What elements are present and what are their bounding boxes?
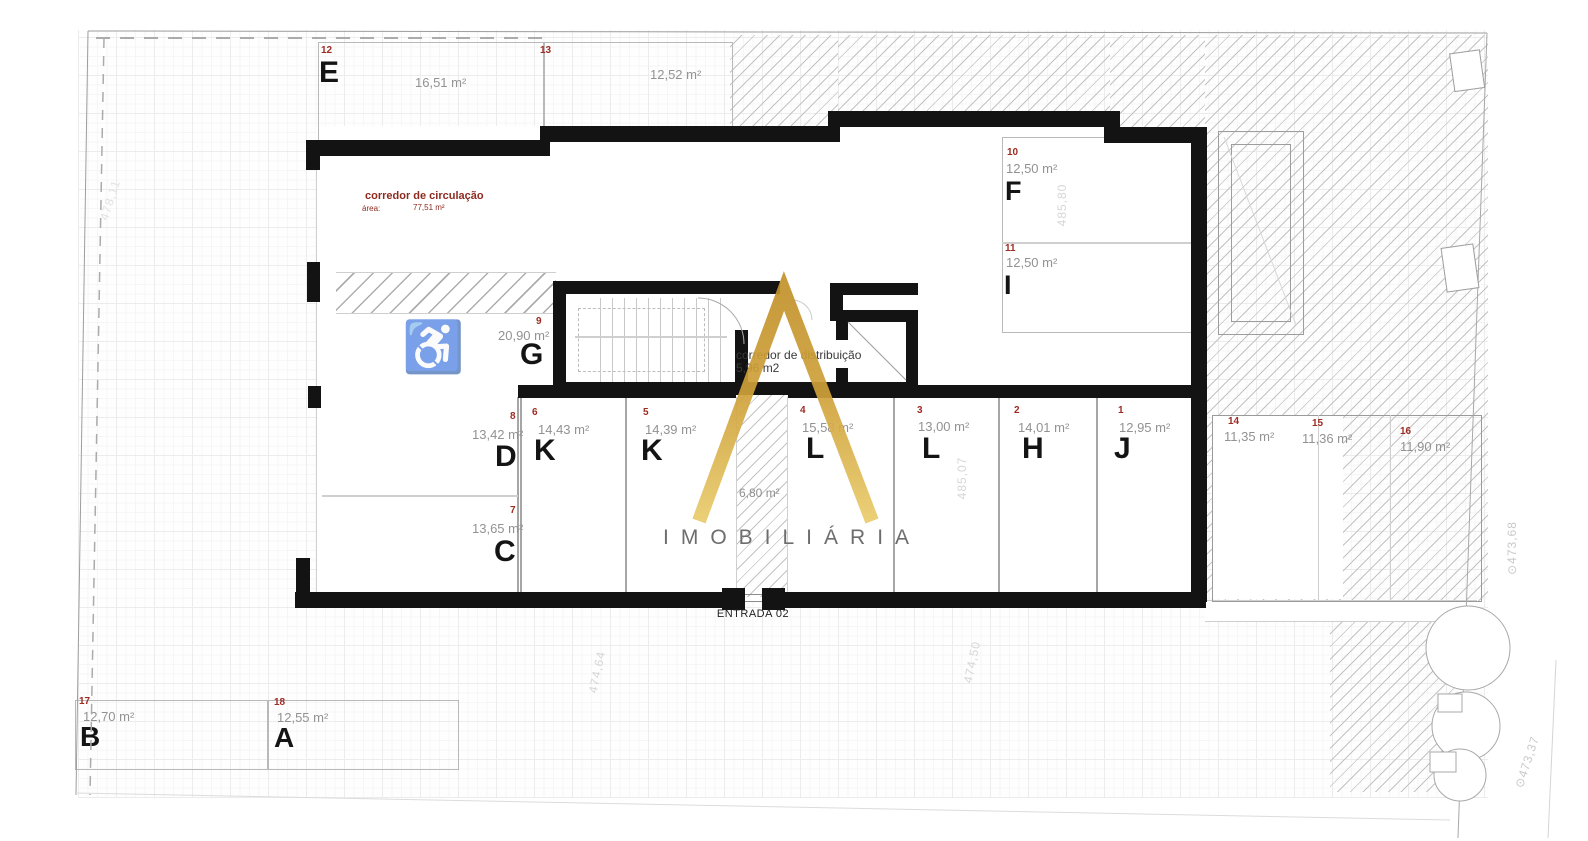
wall-top-3 [828, 111, 1120, 127]
distribution-corridor-line2: 5,96 m2 [736, 361, 779, 375]
floor-plan-scene: 12 E 16,51 m² 13 12,52 m² 10 12,50 m² F … [0, 0, 1588, 841]
wall-bottom-right [785, 592, 1206, 608]
hatch-strip-above-g [336, 273, 556, 313]
divider-h2-j1 [1096, 397, 1098, 593]
unit-number-6: 6 [532, 408, 538, 418]
divider-corridor-right [787, 397, 788, 593]
wall-left-stub-3 [308, 386, 321, 408]
elevation-473-68: ⊙473,68 [1505, 521, 1519, 575]
unit-area-16: 11,90 m² [1400, 440, 1450, 453]
unit-area-i: 12,50 m² [1006, 256, 1057, 269]
unit-number-17: 17 [79, 697, 90, 707]
shaft-wall-left-upper [836, 310, 848, 340]
unit-number-5: 5 [643, 408, 649, 418]
unit-letter-k6: K [534, 436, 556, 466]
hatch-region-top-2 [838, 35, 1110, 115]
stall-13-box [543, 42, 733, 130]
unit-number-13: 13 [540, 46, 551, 56]
unit-number-10: 10 [1007, 148, 1018, 158]
unit-number-8: 8 [510, 412, 516, 422]
divider-d-c [322, 495, 518, 497]
unit-area-13: 12,52 m² [650, 68, 701, 81]
unit-letter-a: A [274, 724, 294, 752]
unit-letter-g: G [520, 340, 543, 370]
unit-number-9: 9 [536, 317, 542, 327]
divider-l4-l3 [893, 397, 895, 593]
unit-area-f: 12,50 m² [1006, 162, 1057, 175]
hatch-region-top-1 [730, 35, 838, 135]
stall-e-box [318, 42, 545, 144]
unit-f-i-divider [1002, 242, 1192, 244]
unit-number-14: 14 [1228, 417, 1239, 427]
unit-area-14: 11,35 m² [1224, 430, 1274, 443]
elevation-485-80: 485,80 [1055, 184, 1069, 227]
hatch-strip-top-line [336, 272, 556, 273]
unit-number-3: 3 [917, 406, 923, 416]
circulation-corridor-title: corredor de circulação [365, 191, 484, 202]
unit-number-2: 2 [1014, 406, 1020, 416]
stair-mid-rail [575, 336, 727, 338]
unit-letter-b: B [80, 723, 100, 751]
stair-dashed-outline [578, 308, 705, 372]
divider-l3-h2 [998, 397, 1000, 593]
unit-letter-c: C [494, 537, 516, 567]
wall-bottom-left [295, 592, 722, 608]
divider-corridor-left [736, 397, 737, 593]
wall-top-2 [540, 126, 840, 142]
unit-letter-e: E [319, 58, 339, 88]
stairwell-wall-left [553, 281, 566, 395]
shaft-wall-bottom [836, 382, 918, 395]
lightwell-inner-box [1231, 144, 1291, 322]
service-band [1205, 600, 1477, 622]
unit-area-c: 13,65 m² [472, 522, 523, 535]
divider-k6-k5 [625, 397, 627, 593]
stairwell-wall-top [553, 281, 780, 294]
unit-area-15: 11,36 m² [1302, 432, 1352, 445]
entrance-hall-area: 6,80 m² [739, 487, 780, 499]
unit-number-7: 7 [510, 506, 516, 516]
unit-letter-i: I [1004, 272, 1012, 299]
wall-right [1191, 127, 1207, 602]
wall-left-stub-4 [296, 558, 310, 600]
service-band-bottom-line [1205, 621, 1477, 622]
entrance-jamb-right [762, 588, 785, 610]
hatch-strip-bottom-line [336, 313, 556, 314]
stall-15-16-divider [1390, 415, 1391, 600]
unit-number-11: 11 [1005, 244, 1016, 254]
unit-letter-k5: K [641, 436, 663, 466]
unit-area-e: 16,51 m² [415, 76, 466, 89]
unit-number-12: 12 [321, 46, 332, 56]
unit-letter-j: J [1114, 434, 1131, 464]
elevation-473-37: ⊙473,37 [1512, 734, 1542, 789]
accessibility-icon: ♿ [402, 322, 464, 372]
entrance-label: ENTRADA 02 [693, 608, 813, 621]
entrance-jamb-left [722, 588, 745, 610]
unit-letter-l4: L [806, 434, 824, 464]
unit-number-4: 4 [800, 406, 806, 416]
unit-number-16: 16 [1400, 427, 1411, 437]
wall-left-stub-1 [306, 140, 320, 170]
unit-letter-h: H [1022, 434, 1044, 464]
entrance-door-line-2 [745, 601, 762, 602]
unit-letter-l3: L [922, 434, 940, 464]
hatch-region-bottom-right [1330, 622, 1462, 792]
unit-number-1: 1 [1118, 406, 1124, 416]
circulation-corridor-area-value: 77,51 m² [413, 204, 445, 212]
shaft-wall-above-h [830, 283, 918, 295]
unit-letter-f: F [1005, 178, 1022, 205]
left-facade-line [316, 156, 317, 593]
unit-letter-d: D [495, 442, 517, 472]
unit-number-15: 15 [1312, 419, 1323, 429]
hatch-region-top-3 [1110, 35, 1205, 135]
wall-left-stub-2 [307, 262, 320, 302]
stairwell-wall-bottom [553, 382, 836, 395]
wall-top-1 [318, 140, 550, 156]
entrance-door-line-1 [745, 594, 762, 595]
watermark-brand-text: IMOBILIÁRIA [663, 526, 913, 550]
circulation-corridor-area-label: área: [362, 205, 380, 213]
elevation-485-07: 485,07 [955, 457, 969, 500]
unit-number-18: 18 [274, 698, 285, 708]
